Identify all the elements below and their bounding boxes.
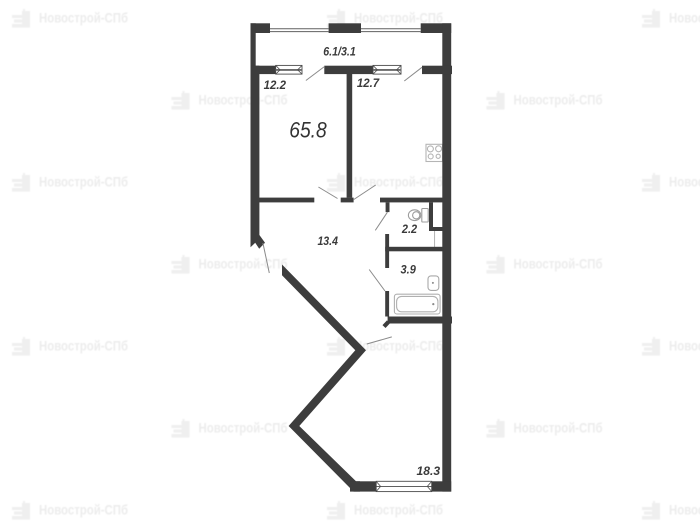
svg-text:13.4: 13.4 xyxy=(317,234,338,248)
svg-text:3.9: 3.9 xyxy=(401,263,417,277)
svg-text:12.7: 12.7 xyxy=(357,76,381,90)
svg-text:18.3: 18.3 xyxy=(417,464,441,478)
svg-text:2.2: 2.2 xyxy=(401,222,417,236)
svg-text:6.1/3.1: 6.1/3.1 xyxy=(323,44,356,58)
svg-text:12.2: 12.2 xyxy=(264,78,287,92)
svg-text:65.8: 65.8 xyxy=(289,118,327,143)
